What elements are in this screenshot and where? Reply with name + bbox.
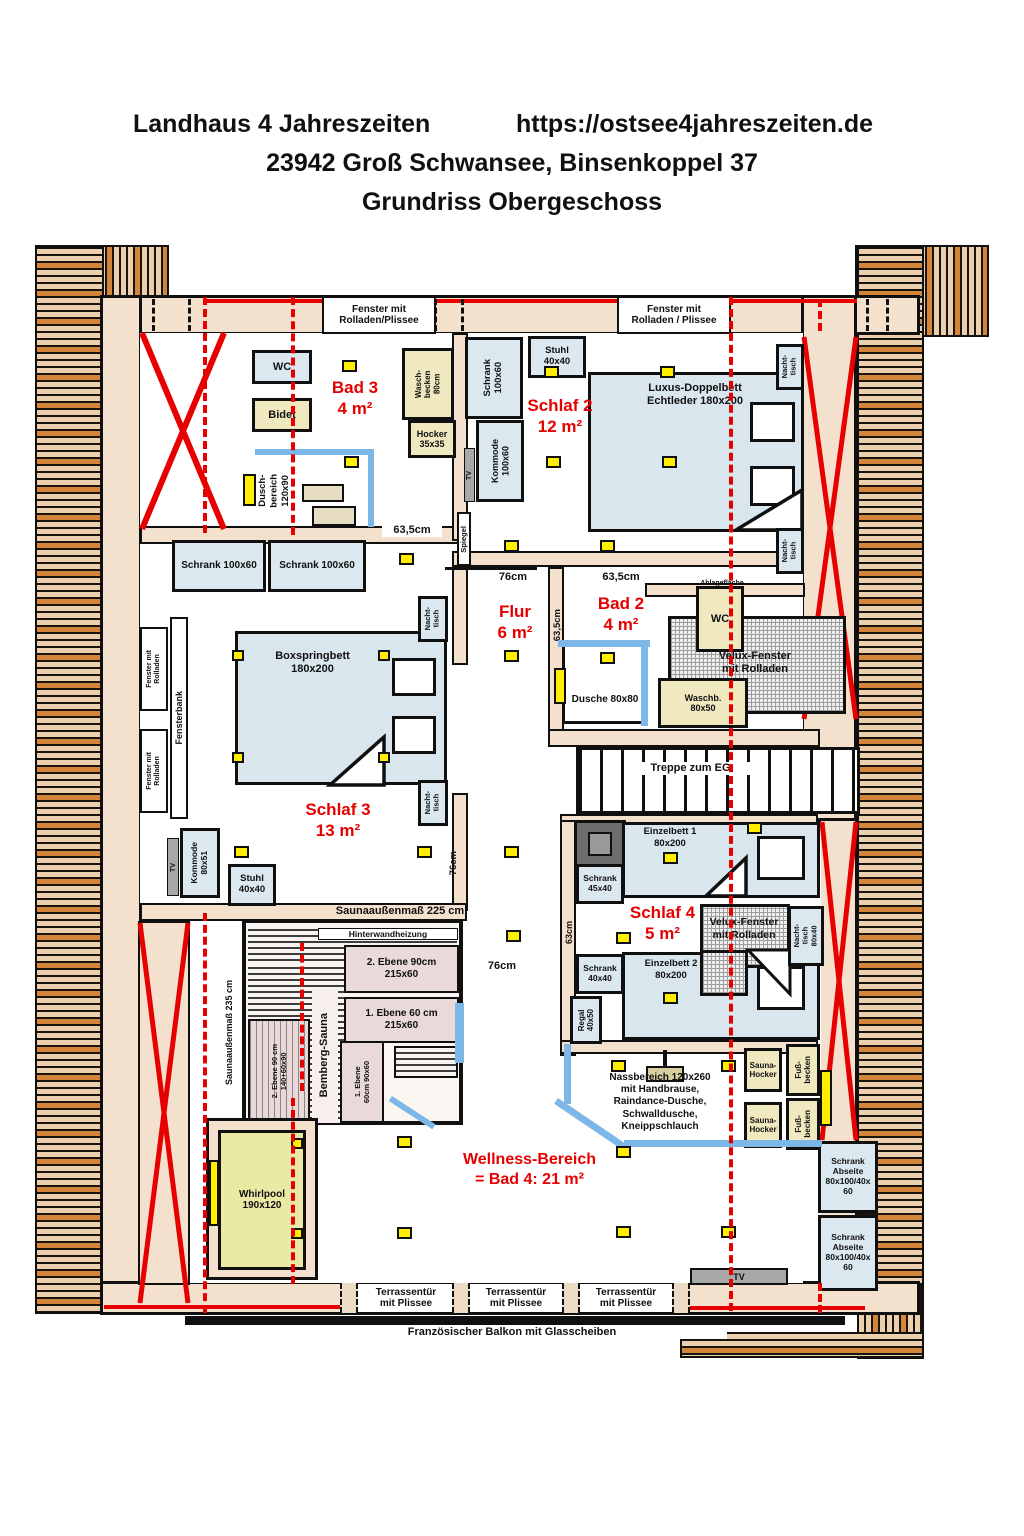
stool-bad3: Hocker 35x35 bbox=[408, 420, 456, 458]
measure-76-b: 76cm bbox=[478, 960, 526, 973]
wall-left bbox=[100, 295, 142, 1315]
shower-tray-bad3 bbox=[302, 484, 344, 502]
shower-fitting-bad2 bbox=[554, 668, 566, 704]
room-label-flur: Flur6 m² bbox=[480, 602, 550, 643]
ceiling-spotlight bbox=[663, 992, 678, 1004]
wardrobe-40: Schrank 40x40 bbox=[576, 954, 624, 994]
floorplan-page: Landhaus 4 Jahreszeiten https://ostsee4j… bbox=[0, 0, 1024, 1536]
shower-fitting-bad3 bbox=[243, 474, 256, 506]
staircase bbox=[576, 747, 860, 814]
french-balcony-rail bbox=[185, 1316, 845, 1325]
roof-slope-line bbox=[818, 299, 822, 331]
site-url: https://ostsee4jahreszeiten.de bbox=[516, 110, 873, 139]
ceiling-spotlight bbox=[546, 456, 561, 468]
door-post bbox=[672, 1283, 690, 1313]
roof-slope-line bbox=[203, 913, 207, 1313]
room-label-schlaf2: Schlaf 212 m² bbox=[505, 396, 615, 437]
ceiling-spotlight bbox=[397, 1227, 412, 1239]
tv-wellness: TV bbox=[690, 1268, 788, 1285]
sauna-heater-label: Hinterwandheizung bbox=[318, 928, 458, 940]
roof-slope-line bbox=[818, 1283, 822, 1313]
shower-glass-bad2-h bbox=[558, 640, 650, 647]
wardrobe-45: Schrank 45x40 bbox=[576, 864, 624, 904]
sauna-bench-step: 1. Ebene 60cm 90x60 bbox=[340, 1041, 384, 1123]
roof-slope-line bbox=[291, 297, 295, 535]
door-post bbox=[452, 1283, 470, 1313]
staircase-label: Treppe zum EG bbox=[628, 762, 753, 775]
ceiling-spotlight bbox=[344, 456, 359, 468]
terrace-door-b: Terrassentür mit Plissee bbox=[468, 1284, 564, 1312]
window-label-top-right: Fenster mit Rolladen / Plissee bbox=[617, 296, 731, 334]
measure-635-b: 63,5cm bbox=[592, 571, 650, 584]
ceiling-spotlight bbox=[660, 366, 675, 378]
ceiling-spotlight bbox=[234, 846, 249, 858]
velux-window-schlaf4-ext bbox=[700, 950, 748, 996]
ceiling-spotlight bbox=[504, 540, 519, 552]
bed-light bbox=[232, 752, 244, 763]
tv-schlaf2: TV bbox=[464, 448, 475, 502]
washbasin-bad3: Wasch- becken 80cm bbox=[402, 348, 454, 420]
eaves-cupboard-b: Schrank Abseite 80x100/40x 60 bbox=[818, 1215, 878, 1291]
plan-subtitle: Grundriss Obergeschoss bbox=[0, 188, 1024, 217]
ceiling-spotlight bbox=[417, 846, 432, 858]
wc-bad2: WC bbox=[696, 586, 744, 652]
measure-76-a: 76cm bbox=[490, 571, 536, 584]
ceiling-spotlight bbox=[399, 553, 414, 565]
french-balcony-label: Französischer Balkon mit Glasscheiben bbox=[297, 1326, 727, 1339]
bed-light bbox=[378, 752, 390, 763]
wall-bad2-south bbox=[548, 729, 820, 747]
window-label-top-left: Fenster mit Rolladen/Plissee bbox=[322, 296, 436, 334]
sauna-bench-lower: 1. Ebene 60 cm 215x60 bbox=[344, 997, 459, 1043]
wall-schlaf2-south bbox=[452, 551, 803, 567]
roof-brace-x-top-left bbox=[142, 333, 224, 529]
ceiling-spotlight bbox=[397, 1136, 412, 1148]
roof-slope-line bbox=[300, 943, 304, 1091]
measure-line bbox=[445, 567, 537, 570]
nightstand-schlaf4: Nacht- tisch 80x40 bbox=[788, 906, 824, 966]
velux-label-bad2: Velux-Fenster mit Rolladen bbox=[680, 650, 830, 677]
mirror-schlaf2: Spiegel bbox=[457, 512, 471, 566]
shower-tray-bad3b bbox=[312, 506, 356, 526]
blanket-fold bbox=[330, 737, 384, 785]
roof-slope-line bbox=[203, 297, 207, 533]
ceiling-spotlight bbox=[342, 360, 357, 372]
ceiling-spotlight bbox=[611, 1060, 626, 1072]
window-tick bbox=[152, 299, 155, 331]
ceiling-spotlight bbox=[600, 540, 615, 552]
roof-slope-line bbox=[729, 297, 733, 1311]
glass-wall-h bbox=[624, 1140, 822, 1147]
terrace-door-c: Terrassentür mit Plissee bbox=[578, 1284, 674, 1312]
roof-wood-strip-left bbox=[35, 247, 104, 1314]
window-tick bbox=[886, 299, 889, 331]
pillow bbox=[757, 836, 805, 880]
window-left-b: Fenster mit Rolladen bbox=[140, 729, 168, 813]
sauna-name: Bemberg-Sauna bbox=[312, 988, 338, 1123]
pillow bbox=[750, 402, 795, 442]
room-label-bad2: Bad 24 m² bbox=[585, 594, 657, 635]
velux-fold bbox=[748, 950, 790, 994]
ceiling-spotlight bbox=[747, 822, 762, 834]
ceiling-spotlight bbox=[662, 456, 677, 468]
foot-basin-a: Fuß- becken bbox=[786, 1044, 820, 1096]
measure-76-v: 76cm bbox=[445, 838, 463, 888]
nightstand-schlaf3-a: Nacht- tisch bbox=[418, 596, 448, 642]
window-sill: Fensterbank bbox=[170, 617, 188, 819]
window-left-a: Fenster mit Rolladen bbox=[140, 627, 168, 711]
ceiling-spotlight bbox=[600, 652, 615, 664]
glass-wall-v bbox=[564, 1044, 571, 1104]
ceiling-spotlight bbox=[504, 650, 519, 662]
dresser-schlaf3: Kommode 80x51 bbox=[180, 828, 220, 898]
window-tick bbox=[461, 299, 464, 331]
bed-light bbox=[232, 650, 244, 661]
sauna-bench-upper: 2. Ebene 90cm 215x60 bbox=[344, 945, 459, 993]
ceiling-spotlight bbox=[663, 852, 678, 864]
ceiling-spotlight bbox=[544, 366, 559, 378]
ceiling-spotlight bbox=[616, 1146, 631, 1158]
roof-slope-line bbox=[291, 1098, 295, 1284]
wardrobe-schlaf3-a: Schrank 100x60 bbox=[172, 540, 266, 592]
sauna-outer-width-label: Saunaaußenmaß 225 cm bbox=[285, 905, 515, 918]
pillow bbox=[392, 716, 436, 754]
whirlpool-fitting bbox=[209, 1160, 219, 1226]
sauna-shelf bbox=[394, 1046, 458, 1078]
sauna-glass-door bbox=[455, 1003, 464, 1063]
roof-wood-strip-right bbox=[857, 247, 924, 1287]
boxspring-bed-label: Boxspringbett 180x200 bbox=[245, 650, 380, 677]
sauna-outer-height-label: Saunaaußenmaß 235 cm bbox=[220, 938, 238, 1128]
shower-glass-bad2-v bbox=[641, 640, 648, 726]
measure-635-a: 63,5cm bbox=[382, 524, 442, 537]
shelf-regal: Regal 40x50 bbox=[570, 996, 602, 1044]
window-tick bbox=[188, 299, 191, 331]
room-label-wellness: Wellness-Bereich= Bad 4: 21 m² bbox=[432, 1150, 627, 1189]
washbasin-bad2: Waschb. 80x50 bbox=[658, 678, 748, 728]
wardrobe-schlaf3-b: Schrank 100x60 bbox=[268, 540, 366, 592]
eaves-cupboard-a: Schrank Abseite 80x100/40x 60 bbox=[818, 1141, 878, 1213]
blanket-fold bbox=[706, 858, 746, 896]
shower-glass-bad3-h bbox=[255, 449, 373, 455]
wet-area-label: Nassbereich 120x260 mit Handbrause, Rain… bbox=[580, 1072, 740, 1133]
red-line-top bbox=[205, 299, 857, 303]
single-bed-1-label: Einzelbett 1 80x200 bbox=[628, 826, 712, 849]
room-label-schlaf3: Schlaf 313 m² bbox=[292, 800, 384, 841]
wall-fitting bbox=[820, 1070, 832, 1126]
measure-63-v: 63cm bbox=[561, 910, 577, 956]
nightstand-schlaf2-a: Nacht- tisch bbox=[776, 344, 804, 390]
nightstand-schlaf2-b: Nacht- tisch bbox=[776, 528, 804, 574]
wall-flur-west-a bbox=[452, 567, 468, 665]
page-title: Landhaus 4 Jahreszeiten bbox=[133, 110, 430, 139]
sauna-stool-a: Sauna- Hocker bbox=[744, 1048, 782, 1092]
chimney-core bbox=[588, 832, 612, 856]
pillow bbox=[392, 658, 436, 696]
nightstand-schlaf3-b: Nacht- tisch bbox=[418, 780, 448, 826]
blanket-fold bbox=[736, 490, 802, 530]
ceiling-spotlight bbox=[506, 930, 521, 942]
ceiling-spotlight bbox=[616, 1226, 631, 1238]
bed-light bbox=[378, 650, 390, 661]
terrace-door-a: Terrassentür mit Plissee bbox=[358, 1284, 454, 1312]
bidet: Bidet bbox=[252, 398, 312, 432]
window-tick bbox=[866, 299, 869, 331]
door-post bbox=[562, 1283, 580, 1313]
chair-schlaf3: Stuhl 40x40 bbox=[228, 864, 276, 906]
wc-bad3: WC bbox=[252, 350, 312, 384]
window-tick bbox=[434, 299, 437, 331]
shower-glass-bad3-v bbox=[368, 449, 374, 527]
tv-schlaf3: TV bbox=[167, 838, 179, 896]
room-label-bad3: Bad 34 m² bbox=[310, 378, 400, 419]
red-line-bottom-right bbox=[688, 1306, 865, 1310]
address: 23942 Groß Schwansee, Binsenkoppel 37 bbox=[0, 149, 1024, 178]
roof-brace-x-bottom-left bbox=[140, 923, 188, 1303]
ceiling-spotlight bbox=[616, 932, 631, 944]
door-post bbox=[340, 1283, 358, 1313]
washbasin-bad3-label: Wasch- becken 80cm bbox=[414, 370, 442, 398]
ceiling-spotlight bbox=[504, 846, 519, 858]
